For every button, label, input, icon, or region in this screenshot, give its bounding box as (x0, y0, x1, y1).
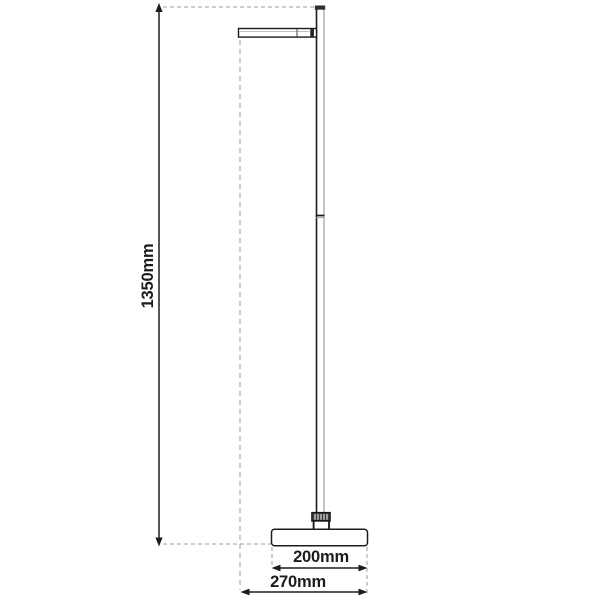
total-width-dim-label: 270mm (270, 573, 326, 591)
height-dim-arrow-bottom (155, 538, 162, 547)
dimension-diagram: 1350mm 200mm 270mm (0, 0, 600, 600)
height-dim-label: 1350mm (139, 244, 157, 309)
lamp-drawing (239, 6, 368, 546)
base-width-dim-label: 200mm (293, 548, 349, 566)
total-width-arrow-left (241, 589, 250, 596)
floor-lamp-technical-drawing: 1350mm 200mm 270mm (0, 0, 600, 600)
height-dim-arrow-top (155, 3, 162, 12)
total-width-arrow-right (359, 589, 368, 596)
base-width-arrow-right (359, 565, 368, 572)
total-width-dimension: 270mm (241, 573, 368, 595)
lamp-base (272, 529, 368, 546)
base-connector-socket (314, 521, 329, 530)
base-width-dimension: 200mm (272, 548, 368, 571)
base-width-arrow-left (272, 565, 281, 572)
lamp-arm-connector-block (310, 29, 314, 37)
extension-lines (163, 7, 367, 595)
lamp-arm (239, 29, 317, 38)
pole-top-cap (315, 6, 325, 10)
height-dimension: 1350mm (139, 3, 163, 547)
